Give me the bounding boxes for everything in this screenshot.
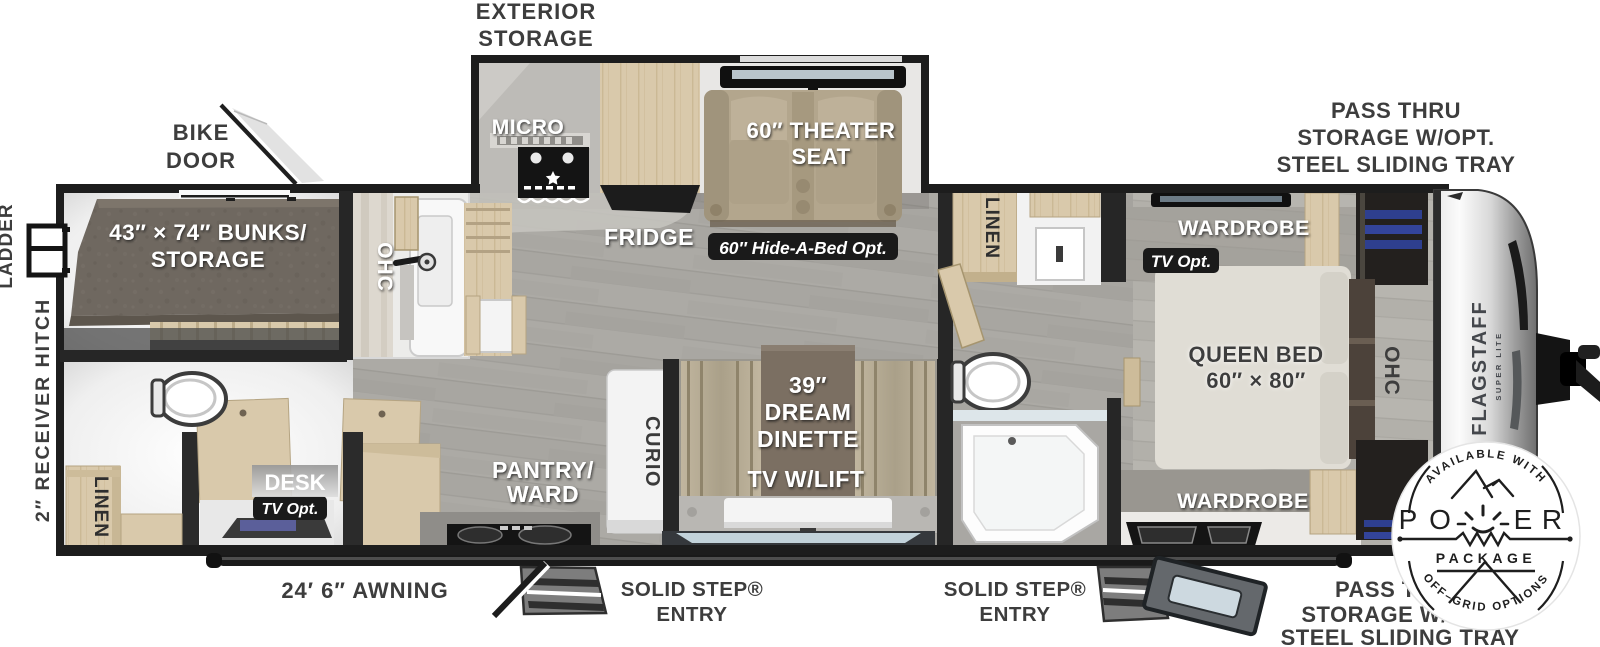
- svg-text:STORAGE: STORAGE: [478, 26, 593, 51]
- svg-text:OHC: OHC: [1380, 346, 1403, 396]
- svg-text:SOLID STEP®: SOLID STEP®: [621, 578, 763, 601]
- svg-text:60″ THEATER: 60″ THEATER: [747, 118, 896, 143]
- svg-text:60″ × 80″: 60″ × 80″: [1206, 368, 1306, 393]
- svg-text:WARDROBE: WARDROBE: [1177, 489, 1309, 513]
- svg-text:PASS THRU: PASS THRU: [1331, 98, 1461, 123]
- svg-text:OHC: OHC: [373, 242, 396, 292]
- svg-text:WARD: WARD: [507, 481, 579, 507]
- svg-text:MICRO: MICRO: [492, 116, 565, 139]
- svg-text:ENTRY: ENTRY: [656, 603, 727, 626]
- svg-text:BIKE: BIKE: [173, 120, 230, 145]
- svg-text:SUPER LITE: SUPER LITE: [1494, 331, 1503, 400]
- svg-text:STORAGE W/OPT.: STORAGE W/OPT.: [1297, 125, 1494, 150]
- svg-text:STORAGE: STORAGE: [151, 247, 265, 272]
- svg-text:DESK: DESK: [264, 470, 325, 495]
- svg-text:PANTRY/: PANTRY/: [492, 457, 594, 483]
- svg-text:O: O: [1429, 504, 1451, 535]
- svg-text:CURIO: CURIO: [641, 416, 663, 488]
- svg-text:2″ RECEIVER HITCH: 2″ RECEIVER HITCH: [32, 298, 54, 522]
- svg-text:LINEN: LINEN: [981, 197, 1002, 259]
- svg-text:EXTERIOR: EXTERIOR: [476, 0, 596, 24]
- svg-text:DOOR: DOOR: [166, 148, 236, 173]
- svg-text:P: P: [1399, 504, 1418, 535]
- svg-text:FLAGSTAFF: FLAGSTAFF: [1469, 300, 1491, 435]
- svg-text:E: E: [1514, 504, 1533, 535]
- svg-text:39″: 39″: [789, 372, 827, 398]
- svg-text:TV Opt.: TV Opt.: [262, 501, 319, 518]
- svg-text:WARDROBE: WARDROBE: [1178, 216, 1310, 240]
- svg-text:24′ 6″ AWNING: 24′ 6″ AWNING: [281, 578, 448, 603]
- svg-text:SOLID STEP®: SOLID STEP®: [944, 578, 1086, 601]
- svg-text:60″ Hide-A-Bed Opt.: 60″ Hide-A-Bed Opt.: [719, 238, 887, 258]
- svg-text:R: R: [1542, 504, 1562, 535]
- svg-text:ENTRY: ENTRY: [979, 603, 1050, 626]
- svg-text:DREAM: DREAM: [765, 399, 852, 425]
- svg-text:LADDER: LADDER: [0, 203, 17, 288]
- svg-text:SEAT: SEAT: [791, 144, 850, 169]
- svg-text:FRIDGE: FRIDGE: [604, 224, 694, 250]
- svg-text:QUEEN BED: QUEEN BED: [1188, 342, 1323, 367]
- svg-text:DINETTE: DINETTE: [757, 426, 859, 452]
- svg-text:TV Opt.: TV Opt.: [1151, 252, 1211, 271]
- svg-text:43″ × 74″ BUNKS/: 43″ × 74″ BUNKS/: [109, 220, 307, 245]
- svg-text:STEEL SLIDING TRAY: STEEL SLIDING TRAY: [1277, 152, 1516, 177]
- svg-text:LINEN: LINEN: [90, 476, 111, 538]
- svg-text:TV W/LIFT: TV W/LIFT: [748, 466, 865, 492]
